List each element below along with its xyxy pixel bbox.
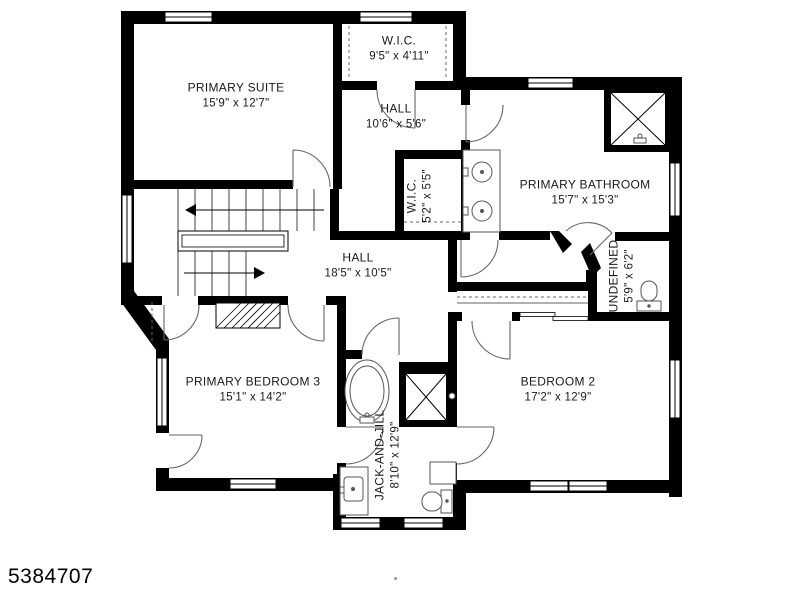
room-name: BEDROOM 2 [521, 375, 596, 391]
room-name: HALL [366, 102, 426, 118]
room-label-hall-upper: HALL 10'6" x 5'6" [366, 102, 426, 133]
shower-icon [604, 86, 672, 152]
room-label-primary-suite: PRIMARY SUITE 15'9" x 12'7" [188, 81, 285, 112]
hatched-closet [216, 303, 280, 328]
room-label-bedroom2: BEDROOM 2 17'2" x 12'9" [521, 375, 596, 406]
floorplan-drawing [0, 0, 800, 600]
room-dimensions: 15'9" x 12'7" [188, 96, 285, 111]
floorplan-canvas: PRIMARY SUITE 15'9" x 12'7" W.I.C. 9'5" … [0, 0, 800, 600]
room-name: JACK-AND-JILL [373, 410, 389, 501]
room-dimensions: 18'5" x 10'5" [325, 266, 392, 281]
room-name: W.I.C. [369, 34, 428, 50]
room-label-jack-and-jill: JACK-AND-JILL 8'10" x 12'9" [373, 410, 404, 501]
double-sink-vanity-icon [463, 150, 500, 232]
room-dimensions: 5'2" x 5'5" [420, 169, 435, 223]
room-name: W.I.C. [405, 169, 421, 223]
room-label-undefined: UNDEFINED 5'9" x 6'2" [607, 240, 638, 313]
room-name: PRIMARY SUITE [188, 81, 285, 97]
room-name: UNDEFINED [607, 240, 623, 313]
room-name: HALL [325, 251, 392, 267]
room-name: PRIMARY BATHROOM [520, 178, 651, 194]
room-dimensions: 9'5" x 4'11" [369, 49, 428, 64]
room-label-wic-small: W.I.C. 5'2" x 5'5" [405, 169, 436, 223]
shower-icon [399, 367, 455, 427]
room-dimensions: 5'9" x 6'2" [622, 240, 637, 313]
room-label-primary-bedroom3: PRIMARY BEDROOM 3 15'1" x 14'2" [186, 375, 321, 406]
stair-railing [178, 231, 288, 251]
listing-id: 5384707 [8, 565, 93, 589]
room-dimensions: 17'2" x 12'9" [521, 390, 596, 405]
sink-vanity-icon [340, 467, 368, 515]
room-label-wic-top: W.I.C. 9'5" x 4'11" [369, 34, 428, 65]
room-dimensions: 10'6" x 5'6" [366, 117, 426, 132]
room-label-hall-main: HALL 18'5" x 10'5" [325, 251, 392, 282]
room-label-primary-bathroom: PRIMARY BATHROOM 15'7" x 15'3" [520, 178, 651, 209]
room-dimensions: 15'1" x 14'2" [186, 390, 321, 405]
room-dimensions: 15'7" x 15'3" [520, 193, 651, 208]
room-dimensions: 8'10" x 12'9" [388, 410, 403, 501]
room-name: PRIMARY BEDROOM 3 [186, 375, 321, 391]
speck [394, 577, 397, 580]
